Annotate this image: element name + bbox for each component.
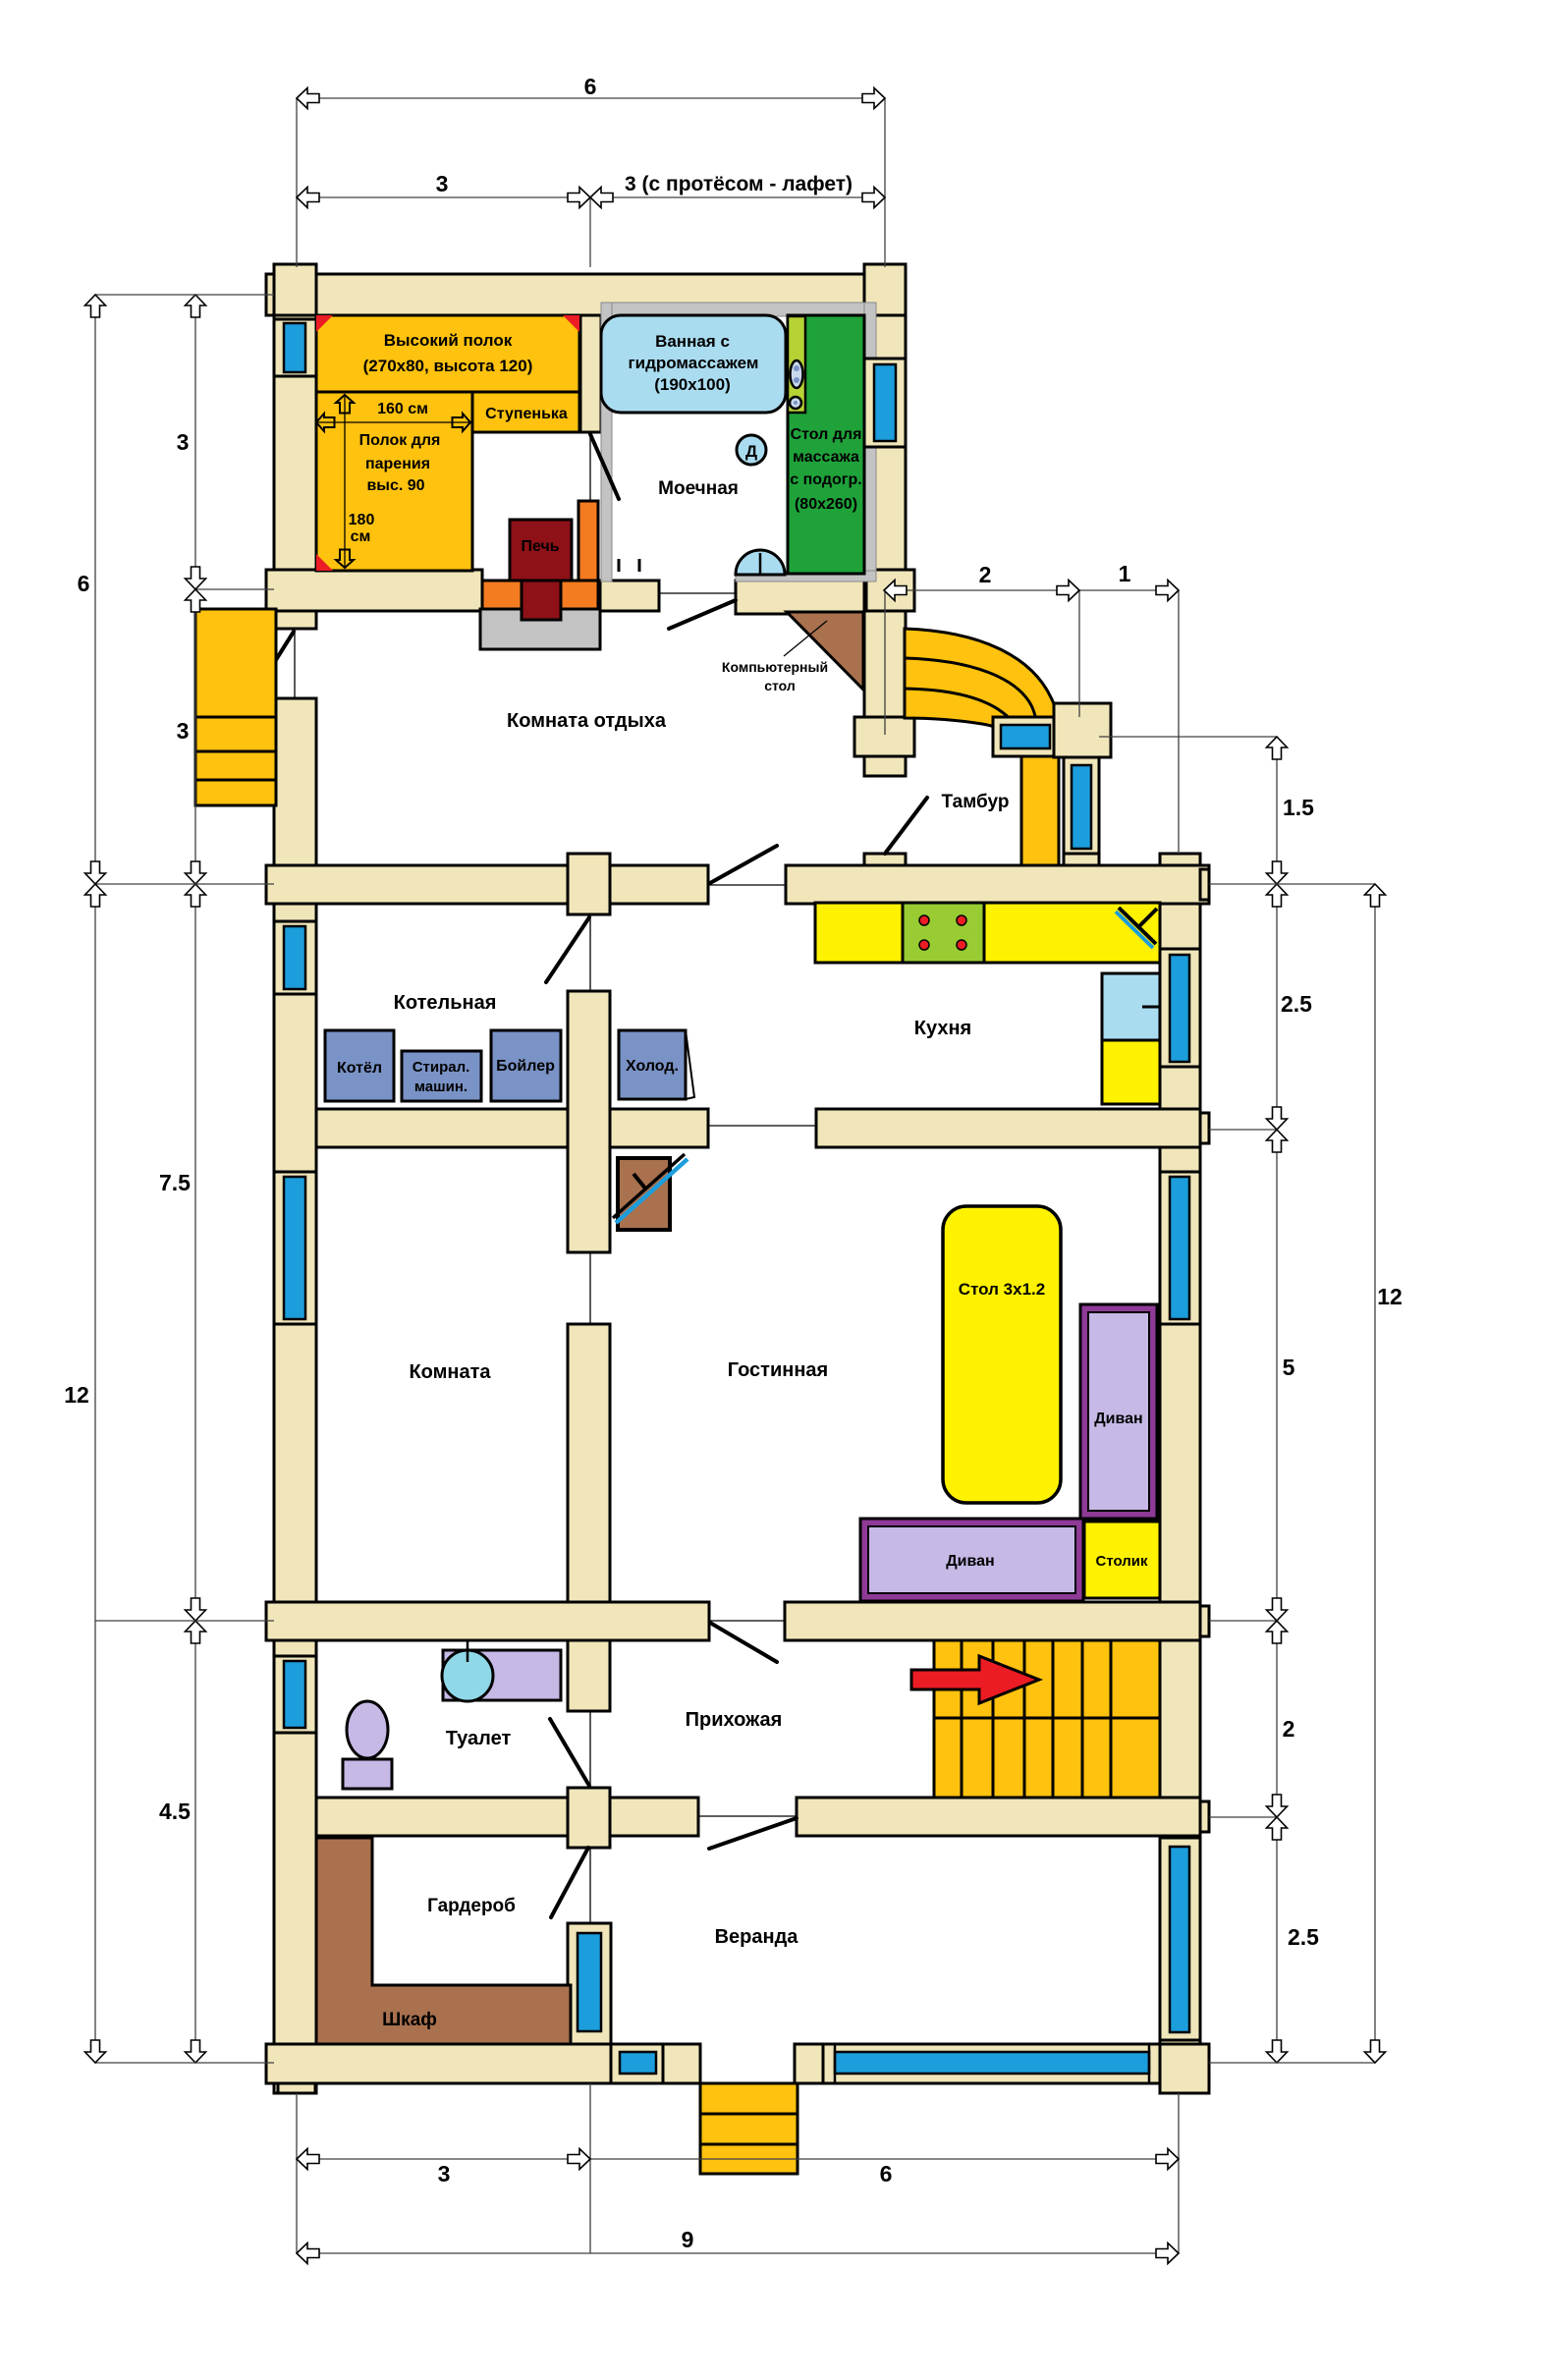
svg-text:Котёл: Котёл — [337, 1060, 382, 1077]
svg-text:3 (с протёсом - лафет): 3 (с протёсом - лафет) — [625, 173, 853, 195]
svg-text:массажа: массажа — [793, 449, 859, 466]
svg-text:Компьютерный: Компьютерный — [722, 659, 828, 675]
svg-text:Диван: Диван — [1094, 1411, 1142, 1427]
svg-text:160 см: 160 см — [377, 401, 428, 417]
svg-text:3: 3 — [438, 2161, 451, 2186]
svg-text:Печь: Печь — [521, 538, 559, 555]
svg-text:см: см — [351, 528, 371, 545]
svg-text:9: 9 — [682, 2227, 694, 2252]
svg-text:2: 2 — [979, 562, 992, 587]
svg-text:Диван: Диван — [946, 1553, 994, 1570]
svg-text:1: 1 — [1119, 561, 1131, 586]
svg-text:Ванная с: Ванная с — [655, 332, 730, 351]
svg-text:Гостинная: Гостинная — [728, 1359, 828, 1381]
svg-text:Комната отдыха: Комната отдыха — [507, 710, 667, 732]
svg-text:Прихожая: Прихожая — [686, 1709, 783, 1731]
svg-text:Стирал.: Стирал. — [413, 1059, 470, 1076]
svg-text:Стол 3х1.2: Стол 3х1.2 — [959, 1280, 1045, 1299]
svg-text:Шкаф: Шкаф — [382, 2010, 437, 2030]
svg-text:Стол для: Стол для — [791, 426, 862, 443]
svg-text:Веранда: Веранда — [715, 1926, 799, 1948]
svg-text:12: 12 — [64, 1382, 89, 1408]
svg-text:5: 5 — [1283, 1355, 1295, 1380]
svg-text:Котельная: Котельная — [394, 992, 497, 1014]
svg-text:12: 12 — [1377, 1284, 1403, 1309]
svg-text:Бойлер: Бойлер — [496, 1058, 555, 1075]
svg-text:(190х100): (190х100) — [654, 375, 731, 394]
svg-text:Туалет: Туалет — [446, 1728, 512, 1749]
svg-text:Холод.: Холод. — [626, 1058, 679, 1075]
svg-text:(270х80, высота 120): (270х80, высота 120) — [363, 357, 533, 375]
svg-text:180: 180 — [349, 512, 375, 528]
svg-text:Кухня: Кухня — [914, 1018, 971, 1039]
svg-text:Высокий полок: Высокий полок — [384, 331, 513, 350]
svg-text:парения: парения — [365, 456, 430, 472]
svg-text:Моечная: Моечная — [658, 478, 739, 499]
svg-text:6: 6 — [78, 571, 90, 596]
svg-text:4.5: 4.5 — [159, 1799, 191, 1824]
svg-text:Полок для: Полок для — [359, 432, 441, 449]
svg-text:(80х260): (80х260) — [795, 496, 857, 513]
svg-text:Гардероб: Гардероб — [427, 1896, 516, 1916]
svg-text:Д: Д — [745, 442, 757, 461]
svg-text:2.5: 2.5 — [1281, 991, 1312, 1017]
svg-text:гидромассажем: гидромассажем — [629, 354, 759, 372]
svg-text:6: 6 — [584, 74, 597, 99]
svg-text:Тамбур: Тамбур — [942, 792, 1010, 812]
svg-text:Ступенька: Ступенька — [485, 406, 568, 422]
svg-text:3: 3 — [177, 718, 190, 744]
svg-text:машин.: машин. — [414, 1079, 468, 1095]
svg-text:7.5: 7.5 — [159, 1170, 191, 1195]
svg-text:Столик: Столик — [1095, 1553, 1148, 1570]
svg-text:1.5: 1.5 — [1283, 795, 1314, 820]
svg-text:выс. 90: выс. 90 — [366, 477, 424, 494]
svg-text:6: 6 — [880, 2161, 893, 2186]
svg-text:стол: стол — [764, 678, 796, 693]
svg-text:2.5: 2.5 — [1288, 1924, 1319, 1950]
svg-text:2: 2 — [1283, 1716, 1295, 1742]
svg-text:Комната: Комната — [409, 1361, 491, 1383]
svg-text:с подогр.: с подогр. — [790, 471, 861, 488]
svg-text:3: 3 — [177, 429, 190, 455]
svg-text:3: 3 — [436, 171, 449, 196]
